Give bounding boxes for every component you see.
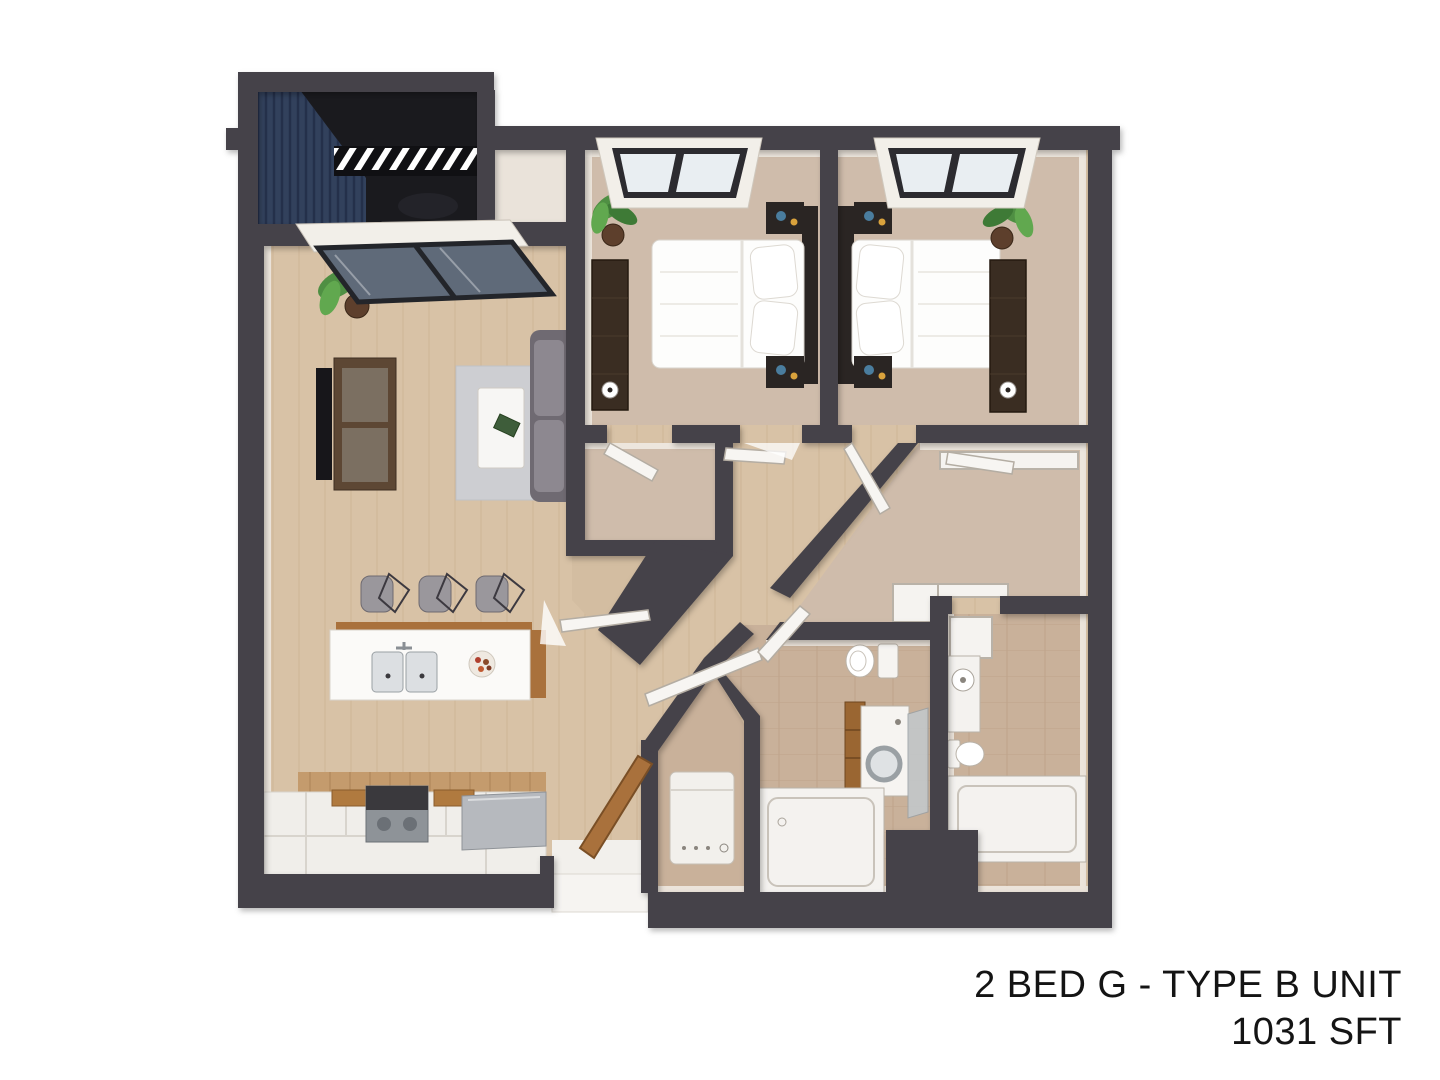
bottom-plumbing-wall <box>886 830 978 893</box>
balcony-left-wall <box>238 72 258 236</box>
pillow <box>855 300 904 356</box>
bathroom-2-top-wall <box>930 596 952 614</box>
plan-title: 2 BED G - TYPE B UNIT <box>974 962 1402 1009</box>
central-closet-left-wall <box>566 443 585 556</box>
bedroom-1-window <box>596 138 762 208</box>
coffee-table <box>478 388 524 468</box>
balcony-top-wall <box>238 72 494 92</box>
floor-plan-rendering <box>0 0 1440 1080</box>
nightstand <box>766 356 804 388</box>
central-closet-carpet <box>585 443 715 540</box>
bathtub-1 <box>758 788 884 896</box>
plan-area: 1031 SFT <box>974 1009 1402 1056</box>
entry-step-wall <box>540 856 554 908</box>
tv <box>316 368 332 480</box>
kitchen-counter-run <box>264 772 546 876</box>
dresser-1 <box>592 260 628 410</box>
washer <box>845 702 909 796</box>
balcony-right-wall <box>477 90 495 236</box>
balcony <box>258 90 477 236</box>
closet-shelf-strip <box>938 584 1008 597</box>
bedroom-1-left-wall <box>566 140 585 443</box>
utility-right-wall <box>744 716 760 893</box>
nightstand <box>854 356 892 388</box>
sink-right <box>406 652 437 692</box>
nightstand <box>854 202 892 234</box>
bedrooms-divider-wall <box>820 140 838 443</box>
floor-plan-svg <box>0 0 1440 1080</box>
bar-stools <box>361 574 524 612</box>
vanity-sink <box>948 656 980 732</box>
plan-title-block: 2 BED G - TYPE B UNIT 1031 SFT <box>974 962 1402 1056</box>
pergola-slats <box>334 148 477 170</box>
pillow <box>749 244 798 300</box>
glass-panel <box>908 708 928 818</box>
dresser-2 <box>990 260 1026 412</box>
bottom-wall-right <box>648 892 1112 928</box>
bedroom-2-bottom-wall <box>916 425 1088 443</box>
water-heater <box>670 772 734 864</box>
right-wall <box>1088 150 1112 928</box>
entry-threshold <box>552 874 648 912</box>
range-stove <box>366 786 428 842</box>
pillow <box>749 300 798 356</box>
console-panel <box>342 428 388 482</box>
door-leaf-open <box>950 617 992 658</box>
kitchen-island <box>330 622 546 700</box>
nightstand <box>766 202 804 234</box>
pillow <box>855 244 904 300</box>
bathroom-2-top-wall <box>1000 596 1088 614</box>
cutting-board <box>332 790 370 806</box>
bedroom-1-bottom-wall <box>672 425 740 443</box>
fruit-bowl <box>469 651 495 677</box>
sink-left <box>372 652 403 692</box>
bottom-wall-left <box>238 874 552 908</box>
left-wall <box>238 234 264 874</box>
bathrooms-divider-wall <box>930 596 948 836</box>
console-panel <box>342 368 388 422</box>
toilet-2 <box>948 740 984 768</box>
balcony-lounge-chair <box>398 193 458 219</box>
bedroom-2-window <box>874 138 1040 208</box>
bedroom-2-bottom-wall <box>838 425 852 443</box>
bedroom-1-bottom-wall <box>566 425 607 443</box>
bedroom-1-bottom-wall <box>802 425 820 443</box>
